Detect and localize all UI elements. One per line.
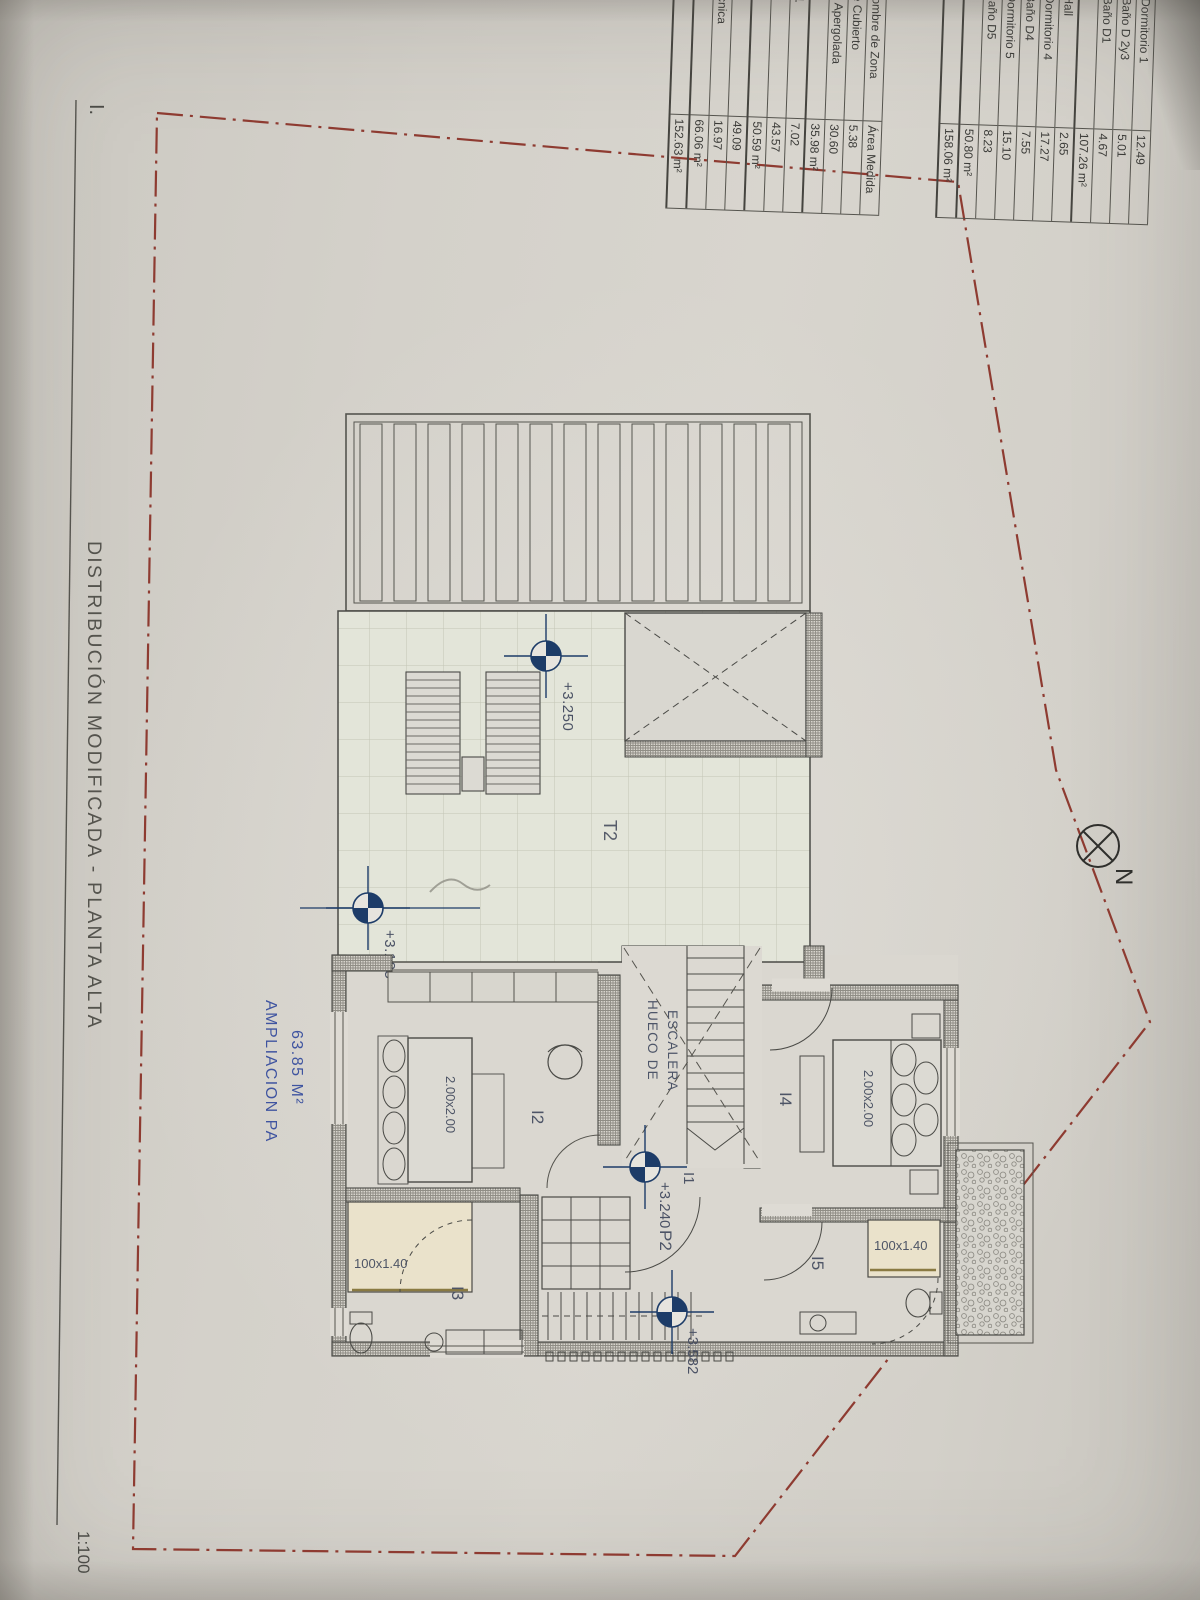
zone-area: 15.10 [995, 126, 1016, 220]
zone-area: 158.06 m² [937, 124, 958, 218]
level-hall: +3.240 [656, 1182, 673, 1228]
zone-area: 7.02 [783, 118, 804, 212]
staircase-upper: HUECO DE ESCALERA [622, 946, 762, 1168]
zone-area: 2.65 [1052, 128, 1073, 222]
zone-area: 12.49 [1129, 131, 1150, 225]
room-label-i2: I2 [528, 1110, 547, 1124]
zone-area: 107.26 m² [1072, 129, 1093, 223]
zone-area: 5.01 [1110, 130, 1131, 224]
room-label-p2: P2 [656, 1230, 675, 1251]
zone-area: 30.60 [822, 120, 843, 214]
room-label-t2: T2 [600, 820, 620, 841]
svg-text:+3.250: +3.250 [559, 682, 576, 731]
north-label: N [1110, 868, 1137, 885]
area-header: Área Medida [860, 121, 881, 215]
area-table-upper: Dormitorio 1 12.49 Baño D 2y3 5.01 Baño … [935, 0, 1156, 225]
zone-area: 35.98 m² [803, 119, 824, 213]
expansion-annotation: AMPLIACION PA 63.85 M² [262, 1000, 305, 1143]
zone-area: 7.55 [1014, 126, 1035, 220]
zone-area: 66.06 m² [687, 115, 708, 209]
wardrobe-i2 [388, 972, 598, 1002]
photographed-floorplan: I. DISTRIBUCIÓN MODIFICADA - PLANTA ALTA… [0, 0, 1200, 1600]
level-stair: +3.582 [684, 1328, 701, 1374]
bed-i4-size: 2.00x2.00 [861, 1070, 876, 1127]
zone-area: 8.23 [976, 125, 997, 219]
zone-area: 50.80 m² [957, 125, 978, 219]
expansion-area: 63.85 M² [288, 1030, 305, 1105]
floorplan-drawing: I. DISTRIBUCIÓN MODIFICADA - PLANTA ALTA… [0, 0, 1200, 1600]
zone-area: 16.97 [706, 116, 727, 210]
zone-header: Nombre de Zona [863, 0, 886, 122]
shower-i3-size: 100x1.40 [354, 1256, 408, 1271]
table-gap [879, 0, 943, 218]
room-label-i1: I1 [680, 1172, 697, 1185]
zone-area: 5.38 [841, 120, 862, 214]
stair-label-1: HUECO DE [645, 1000, 660, 1081]
area-table-lower: Nombre de Zona Área Medida he Cubierto 5… [665, 0, 887, 216]
zone-area: 4.67 [1091, 129, 1112, 223]
page-title: DISTRIBUCIÓN MODIFICADA - PLANTA ALTA [83, 541, 106, 1030]
zone-name: Dormitorio 1 [1132, 0, 1155, 131]
area-table: Dormitorio 1 12.49 Baño D 2y3 5.01 Baño … [694, 0, 1172, 236]
north-indicator: N [1077, 825, 1137, 885]
room-label-i4: I4 [776, 1092, 795, 1106]
expansion-label: AMPLIACION PA [262, 1000, 279, 1143]
title-block: I. DISTRIBUCIÓN MODIFICADA - PLANTA ALTA… [57, 100, 107, 1574]
stair-label-2: ESCALERA [665, 1010, 680, 1092]
zone-area: 49.09 [725, 116, 746, 210]
zone-area: 43.57 [764, 118, 785, 212]
gravel-strip [948, 1143, 1033, 1343]
sheet-label: I. [85, 104, 107, 115]
room-label-i3: I3 [448, 1286, 467, 1300]
pergola [346, 414, 810, 611]
zone-area: 152.63 m² [667, 114, 688, 208]
terrace-t2: T2 [338, 611, 822, 962]
zone-area: 17.27 [1033, 127, 1054, 221]
shower-i5-size: 100x1.40 [874, 1238, 928, 1253]
bed-i2-size: 2.00x2.00 [443, 1076, 458, 1133]
room-label-i5: I5 [808, 1256, 827, 1270]
scale-label: 1:100 [74, 1531, 93, 1574]
zone-area: 50.59 m² [745, 117, 766, 211]
